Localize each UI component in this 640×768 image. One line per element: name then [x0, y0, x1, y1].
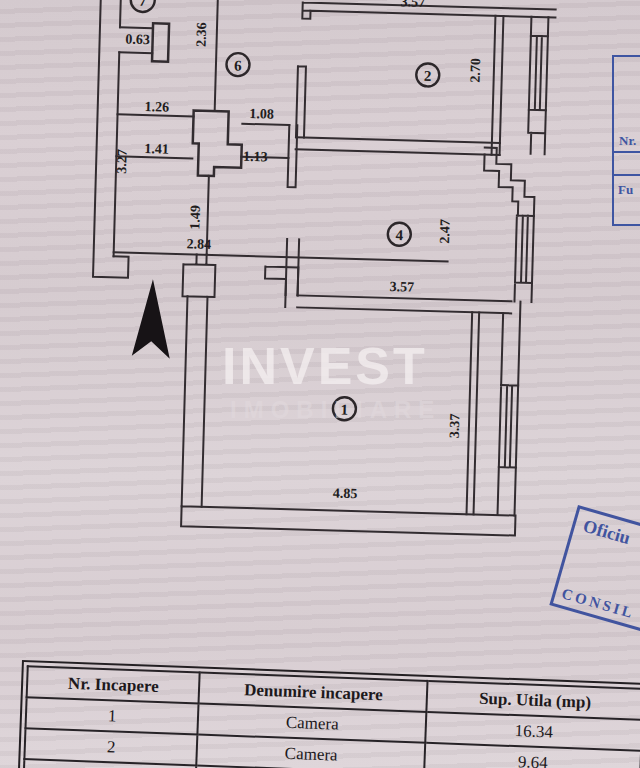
wall-step — [483, 148, 536, 216]
wall-4-1 — [297, 295, 511, 313]
svg-text:4: 4 — [395, 227, 403, 243]
dim-113: 1.13 — [243, 149, 268, 165]
registry-form-fu-label: Fu — [614, 174, 640, 204]
dim-337: 3.37 — [447, 413, 463, 438]
dim-063: 0.63 — [125, 31, 150, 47]
room-markers: 7 6 2 4 1 — [119, 0, 441, 423]
dim-141: 1.41 — [144, 141, 169, 157]
wall-room1-left — [182, 296, 208, 506]
floor-plan: 7 6 2 4 1 3.57 0.63 2.36 1.26 — [0, 0, 640, 655]
dim-236: 2.36 — [193, 22, 209, 47]
wall-room1-bottom — [181, 506, 515, 535]
wall-niche-pier — [152, 23, 169, 61]
wall-room1-right-inner — [467, 312, 480, 514]
scanned-floor-plan-page: 7 6 2 4 1 3.57 0.63 2.36 1.26 — [0, 0, 640, 768]
registry-form-fragment: Nr. Fu — [612, 55, 640, 226]
room-circle-2: 2 — [416, 63, 440, 87]
wall-room4-left — [285, 125, 303, 295]
wall-room2-right — [492, 16, 504, 155]
dim-126: 1.26 — [144, 99, 169, 115]
dim-284: 2.84 — [187, 236, 212, 252]
wall-room1-door-right — [264, 266, 298, 307]
room-circle-4: 4 — [387, 222, 411, 246]
registry-form-nr-label: Nr. — [614, 57, 640, 151]
svg-text:2: 2 — [424, 68, 432, 84]
dim-108: 1.08 — [249, 106, 274, 122]
room-circle-7: 7 — [130, 0, 155, 12]
svg-text:7: 7 — [139, 0, 147, 9]
wall-top — [302, 2, 555, 25]
window-room2 — [529, 36, 548, 110]
window-room1 — [499, 385, 518, 467]
wall-room1-door-left — [182, 254, 215, 297]
pillar — [192, 110, 243, 176]
dim-270: 2.70 — [468, 58, 484, 83]
room-circle-6: 6 — [226, 53, 250, 77]
wall-left-inner — [114, 0, 121, 256]
wall-2-4 — [296, 137, 500, 155]
dim-149: 1.49 — [187, 205, 203, 230]
svg-text:6: 6 — [234, 58, 242, 74]
room-circle-1: 1 — [333, 397, 357, 421]
registry-form-empty-row — [614, 151, 640, 174]
dim-485: 4.85 — [333, 485, 358, 501]
dim-357: 3.57 — [389, 279, 414, 295]
dim-247: 2.47 — [437, 219, 453, 244]
svg-text:1: 1 — [340, 402, 348, 418]
room-schedule-table: Nr. Incapere Denumire incapere Sup. Util… — [17, 660, 640, 768]
dim-top-357: 3.57 — [400, 0, 425, 10]
window-room4 — [514, 215, 533, 301]
wall-7-6 — [215, 0, 218, 111]
north-arrow — [132, 279, 172, 359]
dim-327: 3.27 — [114, 149, 130, 174]
